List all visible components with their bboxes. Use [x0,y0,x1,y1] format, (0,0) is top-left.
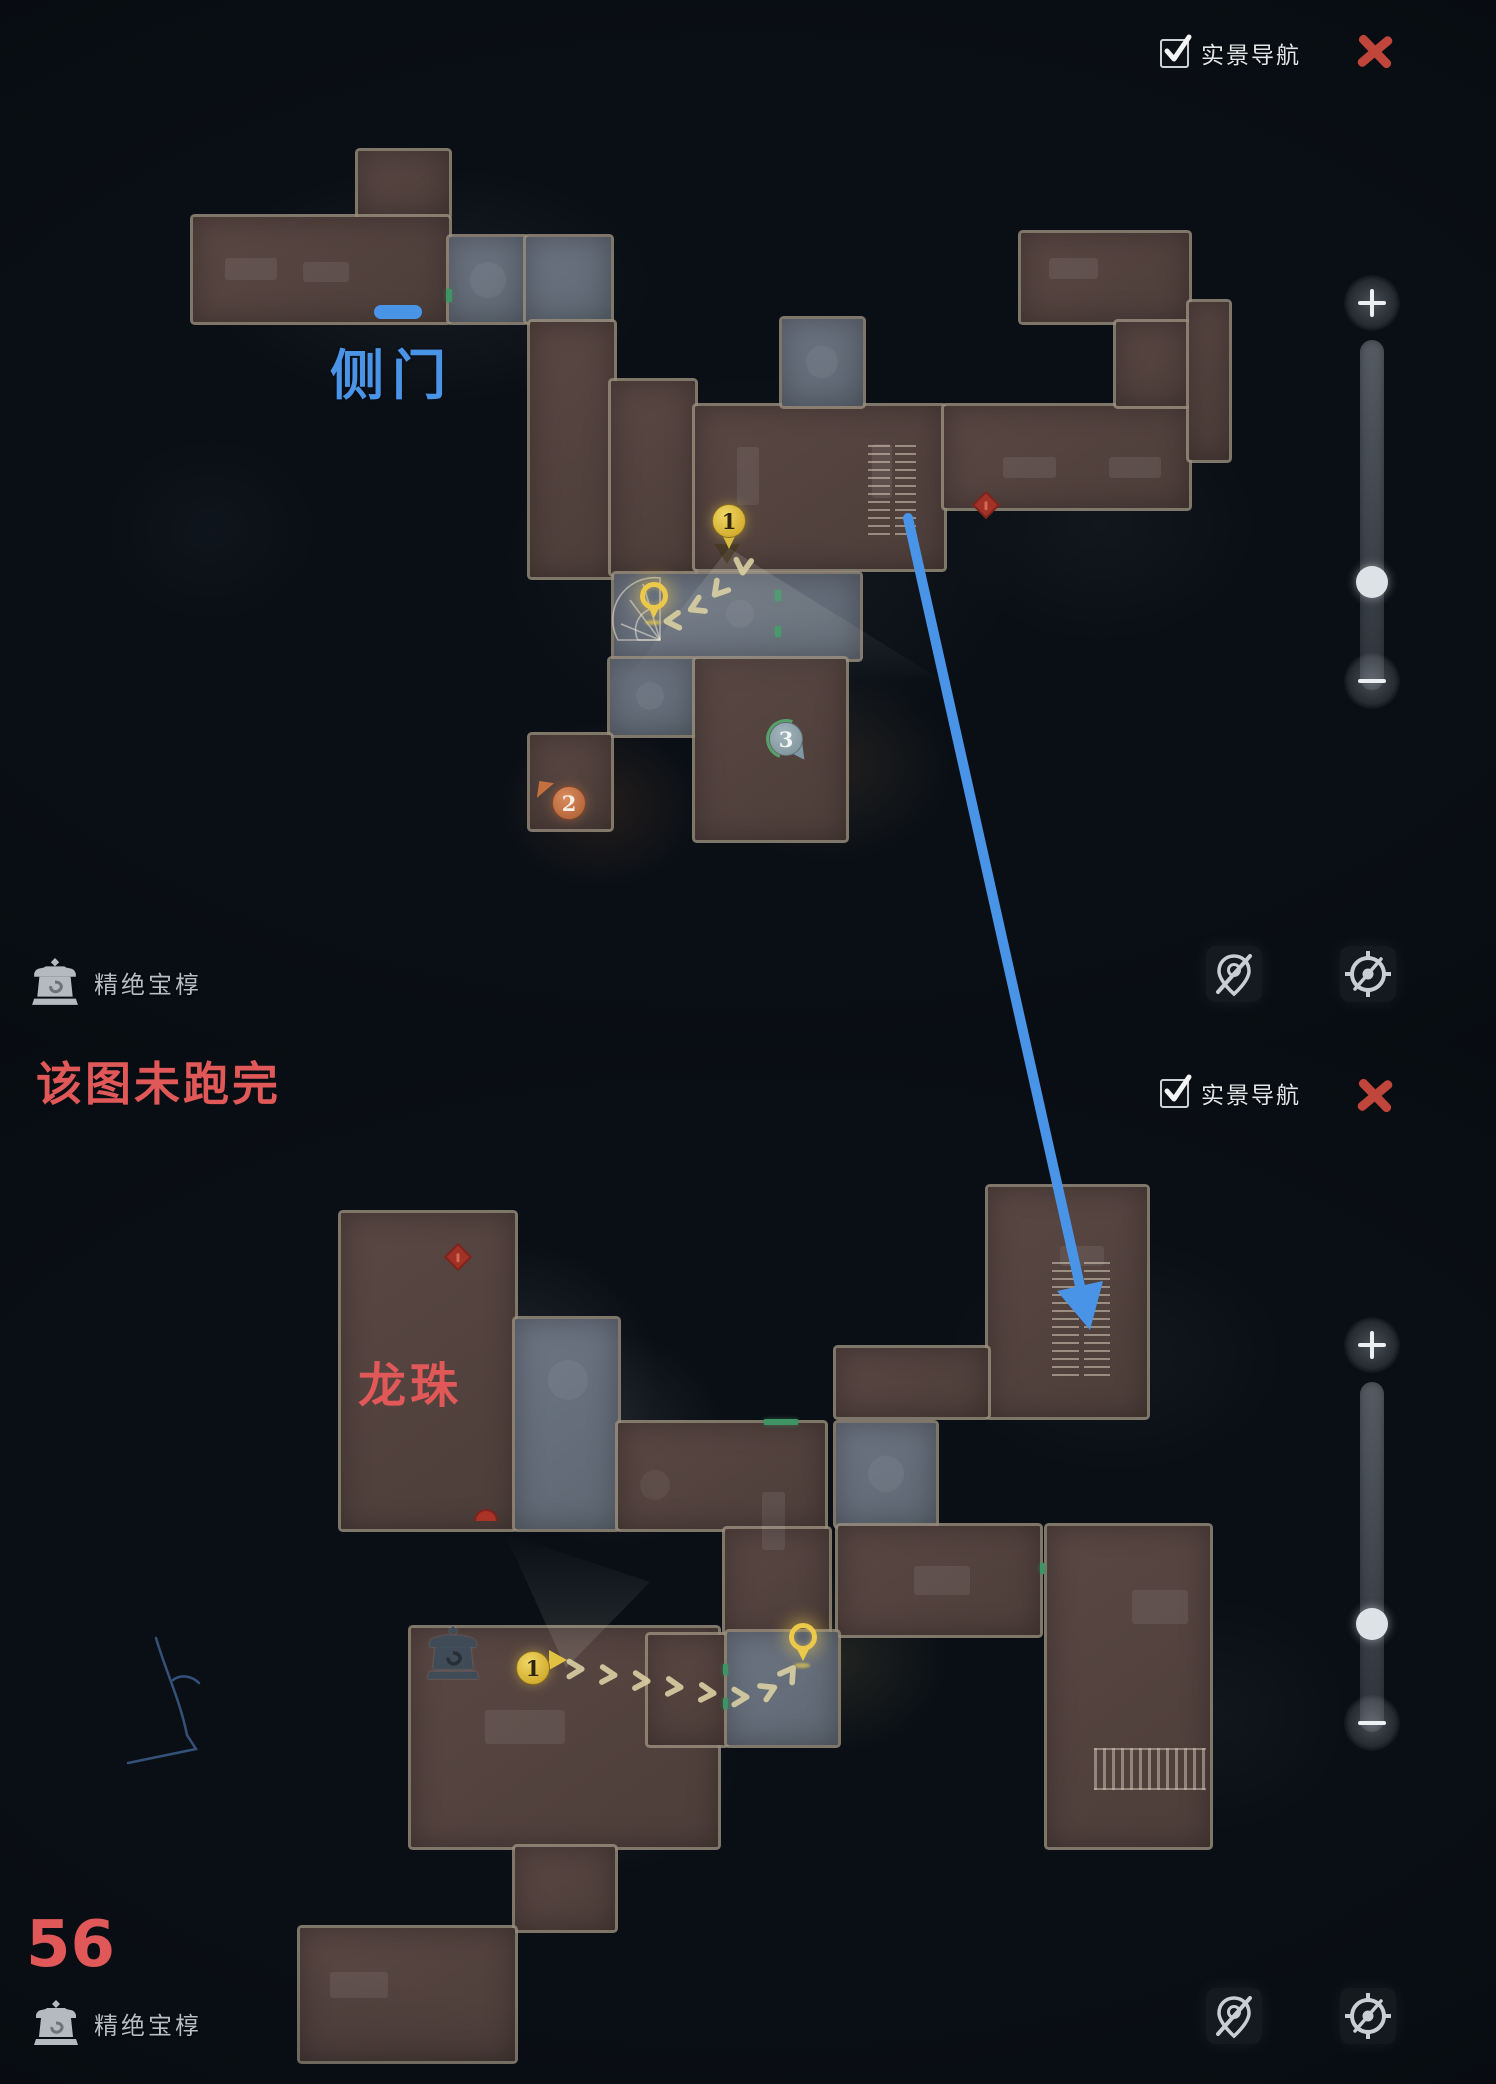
annotation-overlay [0,0,1496,2084]
blue-arrow-head [1057,1281,1103,1330]
blue-arrow-shaft [908,518,1080,1286]
blue-scribble [128,1638,199,1763]
map-collage: 1 3 2 1 实景导航 [0,0,1496,2084]
